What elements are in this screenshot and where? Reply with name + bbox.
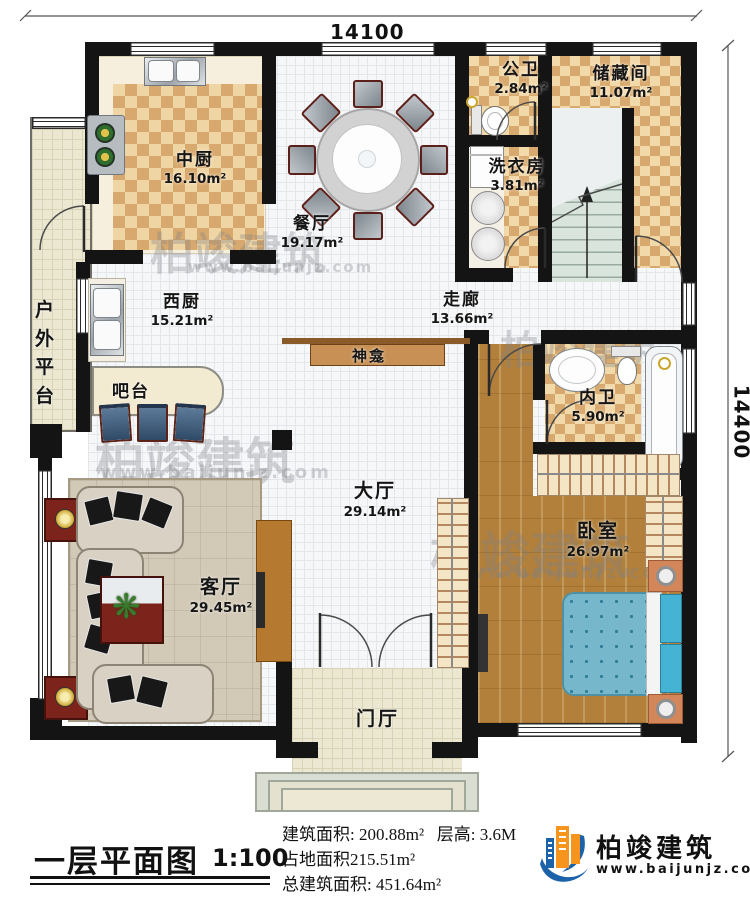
sheet-title: 一层平面图 <box>34 836 199 881</box>
dimension-right: 14400 <box>729 385 750 460</box>
room-name: 大厅 <box>344 480 407 504</box>
outdoor-platform-label: 户外平台 <box>35 296 57 410</box>
room-name: 餐厅 <box>281 214 344 235</box>
plan-linework <box>0 0 750 810</box>
room-name: 卧室 <box>567 520 630 544</box>
stat-text: 建筑面积: 200.88m² <box>282 825 424 844</box>
stat-building-area: 建筑面积: 200.88m² 层高: 3.6M <box>282 820 516 845</box>
room-label-corridor: 走廊 13.66m² <box>431 290 494 328</box>
stat-land-area: 占地面积215.51m² <box>282 845 415 870</box>
room-name: 内卫 <box>571 388 624 409</box>
room-label-chinese-kitchen: 中厨 16.10m² <box>164 150 227 188</box>
stat-text: 层高: 3.6M <box>437 825 516 844</box>
room-name: 储藏间 <box>590 64 653 85</box>
room-area: 11.07m² <box>590 85 653 102</box>
room-name: 洗衣房 <box>489 157 546 178</box>
room-area: 5.90m² <box>571 409 624 426</box>
room-area: 29.14m² <box>344 504 407 521</box>
title-underline <box>30 876 270 879</box>
room-label-master-bath: 内卫 5.90m² <box>571 388 624 426</box>
dimension-top: 14100 <box>330 20 405 44</box>
room-area: 19.17m² <box>281 235 344 252</box>
room-name: 走廊 <box>431 290 494 311</box>
dimension-lines <box>20 10 734 762</box>
room-label-living: 客厅 29.45m² <box>190 576 253 617</box>
room-area: 13.66m² <box>431 311 494 328</box>
room-label-public-wc: 公卫 2.84m² <box>494 60 547 98</box>
room-name: 西厨 <box>151 292 214 313</box>
floor-plan-sheet: 柏竣建筑 www.baijunjz.com 柏竣建筑 柏竣建筑 www.baij… <box>0 0 750 897</box>
room-label-west-kitchen: 西厨 15.21m² <box>151 292 214 330</box>
company-logo-name: 柏竣建筑 <box>596 828 716 865</box>
door-arcs <box>40 102 682 667</box>
room-area: 29.45m² <box>190 600 253 617</box>
company-logo-icon <box>538 820 590 884</box>
foyer-label: 门厅 <box>356 704 400 731</box>
stairs-arrow <box>552 184 622 278</box>
room-area: 26.97m² <box>567 544 630 561</box>
room-area: 3.81m² <box>489 178 546 195</box>
room-area: 16.10m² <box>164 171 227 188</box>
title-underline <box>30 883 270 885</box>
room-area: 2.84m² <box>494 81 547 98</box>
room-area: 15.21m² <box>151 313 214 330</box>
room-label-storage: 储藏间 11.07m² <box>590 64 653 102</box>
company-logo-url: www.baijunjz.com <box>596 862 750 877</box>
room-label-dining: 餐厅 19.17m² <box>281 214 344 252</box>
room-name: 公卫 <box>494 60 547 81</box>
sheet-scale: 1:100 <box>212 844 288 872</box>
room-label-hall: 大厅 29.14m² <box>344 480 407 521</box>
stat-total-area: 总建筑面积: 451.64m² <box>282 870 441 895</box>
room-label-laundry: 洗衣房 3.81m² <box>489 157 546 195</box>
room-name: 客厅 <box>190 576 253 600</box>
room-label-bedroom: 卧室 26.97m² <box>567 520 630 561</box>
room-name: 中厨 <box>164 150 227 171</box>
